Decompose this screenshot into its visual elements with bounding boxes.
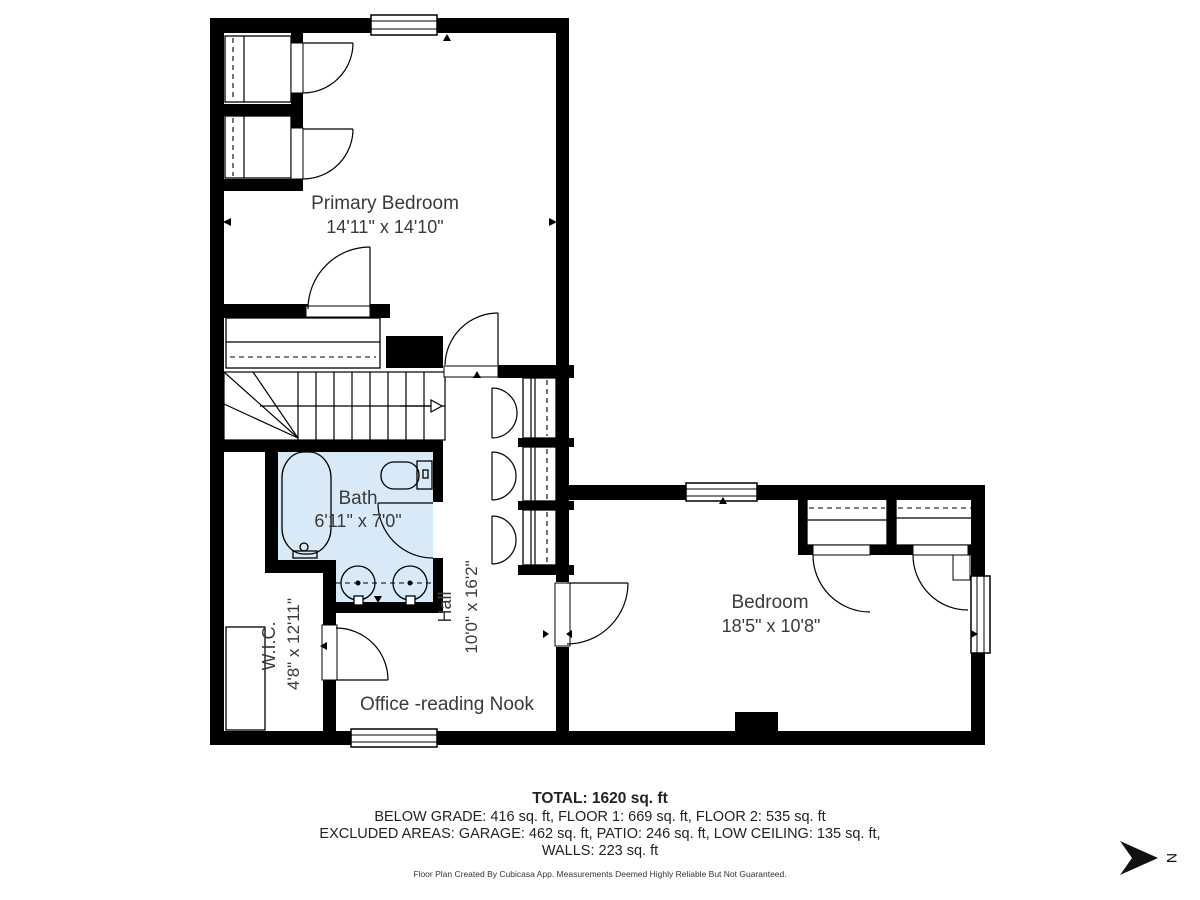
stairs-direction-arrow-icon: [431, 400, 442, 412]
wall-segment: [433, 440, 443, 502]
door-leaf: [813, 545, 870, 555]
floor-plan-canvas: Primary Bedroom 14'11" x 14'10" Bath 6'1…: [0, 0, 1200, 900]
room-label-wic: W.I.C.: [259, 622, 279, 671]
landing-dresser: [226, 318, 380, 368]
wall-segment: [291, 33, 303, 43]
room-dims-wic: 4'8" x 12'11": [284, 598, 303, 690]
wall-segment: [323, 680, 336, 731]
closet-interior: [225, 116, 291, 178]
wall-segment: [518, 565, 574, 575]
wall-segment: [498, 365, 574, 378]
floor-plan-page: Primary Bedroom 14'11" x 14'10" Bath 6'1…: [0, 0, 1200, 900]
wall-segment: [210, 18, 224, 745]
door-swing: [336, 628, 388, 680]
door-swing: [303, 129, 353, 179]
wall-segment: [518, 501, 574, 510]
room-dims-bath: 6'11" x 7'0": [314, 511, 401, 531]
room-label-primary-bedroom: Primary Bedroom: [311, 193, 459, 214]
door-leaf: [444, 366, 498, 377]
window: [686, 483, 757, 501]
chimney-block: [735, 712, 778, 745]
tick-icon: [223, 218, 231, 226]
room-label-bedroom: Bedroom: [731, 592, 808, 613]
hall-closet-interior: [523, 378, 556, 438]
wall-segment: [968, 545, 982, 555]
summary-total: TOTAL: 1620 sq. ft: [532, 790, 668, 807]
bifold-door: [492, 516, 516, 564]
furniture: [225, 36, 977, 730]
window: [371, 15, 437, 35]
wall-segment: [210, 731, 985, 745]
window: [351, 729, 437, 747]
room-label-office: Office -reading Nook: [360, 694, 534, 715]
summary-walls: WALLS: 223 sq. ft: [542, 843, 658, 859]
wall-segment: [265, 560, 333, 573]
hall-closet-interior: [523, 510, 556, 565]
wall-segment: [757, 485, 985, 500]
door-swing: [308, 247, 370, 309]
staircase: [224, 372, 445, 440]
bifold-door: [492, 452, 516, 500]
area-summary: TOTAL: 1620 sq. ft BELOW GRADE: 416 sq. …: [319, 790, 880, 879]
tick-icon: [543, 630, 549, 638]
wall-segment: [798, 545, 813, 555]
summary-excluded: EXCLUDED AREAS: GARAGE: 462 sq. ft, PATI…: [319, 826, 880, 842]
door-stop: [953, 555, 970, 580]
door-leaf: [291, 43, 303, 93]
north-label: N: [1164, 853, 1180, 863]
wall-segment: [556, 647, 569, 731]
hall-closet-interior: [523, 447, 556, 501]
door-swing: [813, 555, 870, 612]
room-label-bath: Bath: [338, 488, 377, 509]
door-leaf: [306, 306, 370, 317]
window: [971, 576, 990, 653]
wall-segment: [556, 485, 688, 500]
bedroom-closet-interior: [896, 496, 977, 545]
tick-icon: [443, 34, 451, 41]
door-swing: [303, 43, 353, 93]
tick-icon: [549, 218, 557, 226]
wall-segment: [224, 304, 308, 318]
wall-segment: [370, 304, 390, 318]
door-leaf: [555, 583, 570, 646]
room-label-hall: Hall: [435, 591, 455, 622]
north-arrow-icon: [1120, 841, 1158, 875]
door-swing: [567, 583, 628, 644]
stair-winder-line: [224, 372, 298, 438]
wall-segment: [323, 560, 336, 625]
disclaimer-text: Floor Plan Created By Cubicasa App. Meas…: [413, 869, 786, 879]
wall-segment: [870, 545, 913, 555]
room-dims-hall: 10'0" x 16'2": [462, 560, 481, 653]
wall-segment: [210, 440, 443, 452]
room-dims-primary-bedroom: 14'11" x 14'10": [326, 217, 443, 237]
closet-interior: [225, 36, 291, 102]
windows: [351, 15, 990, 747]
wall-segment: [265, 440, 278, 572]
compass: N: [1120, 841, 1180, 875]
room-dims-bedroom: 18'5" x 10'8": [722, 616, 821, 636]
bifold-door: [492, 388, 517, 438]
door-leaf: [913, 545, 968, 555]
door-swing: [445, 313, 498, 365]
door-leaf: [291, 128, 303, 179]
wall-segment: [518, 438, 574, 447]
wall-segment: [224, 104, 303, 116]
wall-segment: [386, 336, 443, 368]
door-leaf: [322, 625, 337, 680]
wall-segment: [224, 179, 303, 191]
wall-segment: [323, 602, 443, 613]
summary-floors: BELOW GRADE: 416 sq. ft, FLOOR 1: 669 sq…: [374, 809, 825, 825]
